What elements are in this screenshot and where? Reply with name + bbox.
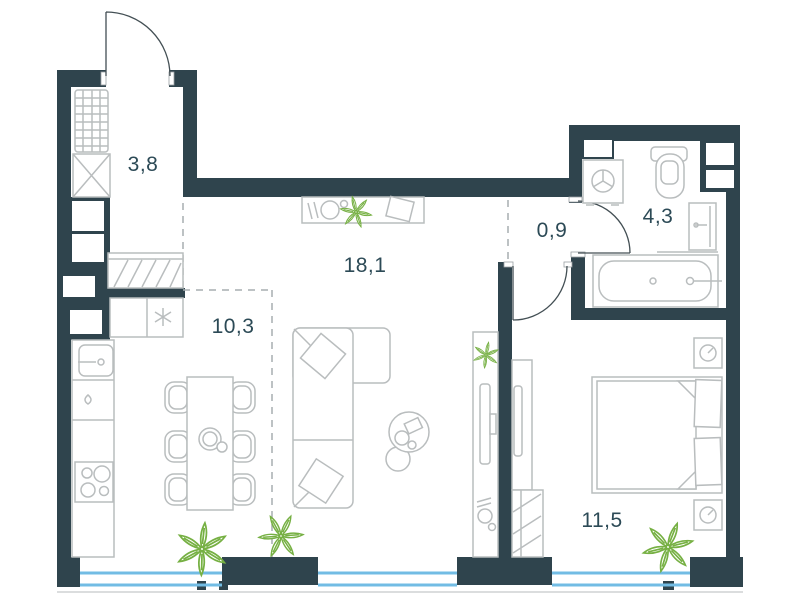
tv-console-bedroom bbox=[512, 360, 532, 490]
windows bbox=[80, 573, 690, 585]
kitchen-cabinet bbox=[110, 298, 183, 337]
entry-door-arc bbox=[106, 12, 170, 76]
laundry-box bbox=[73, 154, 110, 197]
furniture bbox=[72, 90, 722, 557]
floor-plan: 3,8 10,3 18,1 0,9 4,3 11,5 bbox=[0, 0, 800, 600]
tv-living bbox=[480, 384, 490, 464]
toilet bbox=[651, 147, 687, 198]
stove bbox=[75, 462, 113, 502]
hatched-wardrobe bbox=[108, 253, 183, 288]
corner-sofa bbox=[293, 328, 390, 508]
bathtub bbox=[593, 252, 722, 307]
bedroom-wardrobe bbox=[512, 490, 543, 557]
room-label-entry-storage: 3,8 bbox=[128, 153, 159, 177]
door-jambs bbox=[101, 72, 585, 267]
washing-machine bbox=[583, 160, 623, 205]
pillow bbox=[694, 380, 722, 428]
coffee-table bbox=[386, 412, 429, 471]
blanket bbox=[597, 381, 696, 489]
pillow bbox=[694, 438, 722, 486]
shelving-unit bbox=[75, 90, 108, 152]
bathroom-door-arc bbox=[578, 201, 630, 253]
kitchen-counter bbox=[72, 340, 114, 557]
room-label-living-room: 18,1 bbox=[344, 254, 387, 278]
bathroom-sink bbox=[689, 203, 716, 250]
plant-icon bbox=[175, 521, 229, 578]
dining-table bbox=[187, 377, 233, 510]
room-label-corridor: 0,9 bbox=[537, 219, 568, 243]
double-bed bbox=[592, 377, 722, 493]
tv-bedroom bbox=[514, 386, 522, 456]
console-table bbox=[302, 196, 424, 223]
plant-icon bbox=[252, 507, 310, 566]
floor-plan-svg bbox=[0, 0, 800, 600]
room-label-bedroom: 11,5 bbox=[581, 509, 622, 533]
kitchen-sink bbox=[79, 345, 113, 376]
bedroom-door-arc bbox=[513, 266, 567, 320]
plant-icon bbox=[637, 515, 699, 579]
cabinet-knob bbox=[85, 395, 91, 404]
room-label-kitchen-dining: 10,3 bbox=[212, 315, 255, 339]
room-label-bathroom: 4,3 bbox=[643, 205, 674, 229]
